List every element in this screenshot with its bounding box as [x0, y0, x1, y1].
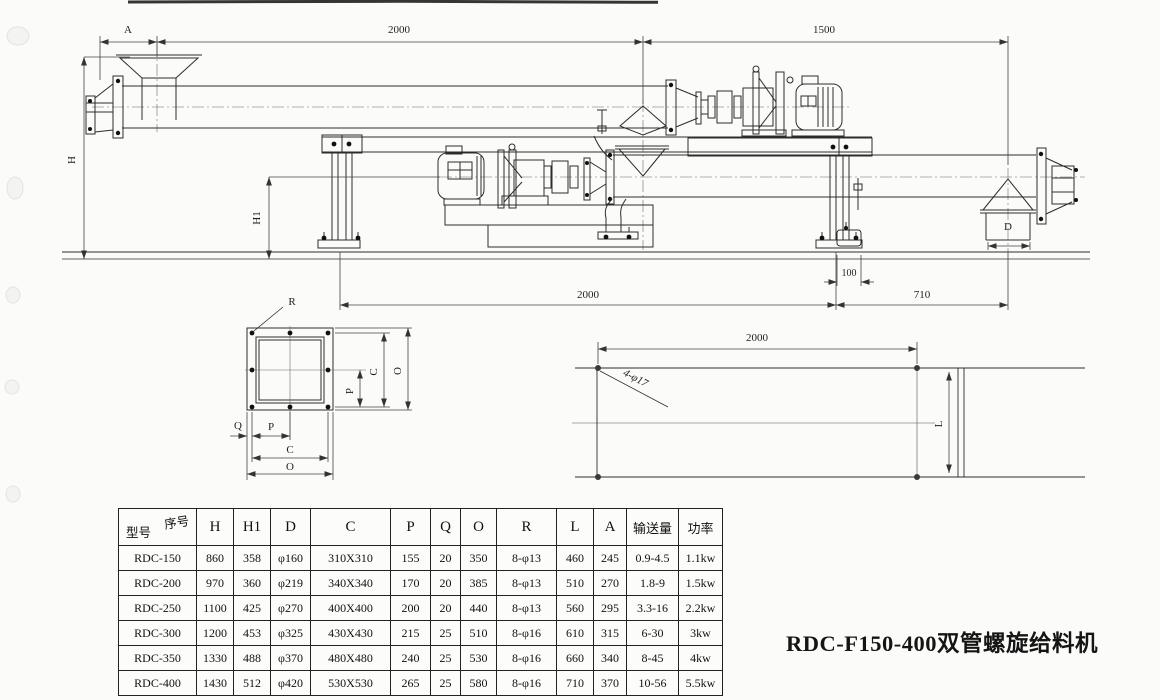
dim-label-2000-top: 2000	[388, 24, 411, 36]
cell-value: 860	[197, 546, 234, 571]
header-model: 型号	[126, 522, 151, 541]
cell-value: φ219	[271, 571, 311, 596]
cell-value: 580	[461, 671, 497, 696]
cell-value: φ270	[271, 596, 311, 621]
cell-model: RDC-150	[119, 546, 197, 571]
cell-value: 340	[594, 646, 627, 671]
dim-label-h: H	[66, 156, 78, 164]
dim-label-100: 100	[842, 268, 857, 279]
cell-value: 3kw	[679, 621, 723, 646]
dim-label-r: R	[288, 296, 296, 308]
cell-value: 970	[197, 571, 234, 596]
cell-value: 155	[391, 546, 431, 571]
cell-value: 1200	[197, 621, 234, 646]
dim-label-h1: H1	[251, 211, 263, 224]
header-q: Q	[431, 509, 461, 546]
cell-value: 315	[594, 621, 627, 646]
cell-value: 560	[557, 596, 594, 621]
dim-label-p-right: P	[344, 388, 356, 394]
cell-value: 440	[461, 596, 497, 621]
cell-value: 8-φ13	[497, 571, 557, 596]
plate-detail-dims	[598, 342, 949, 473]
cell-value: 8-φ13	[497, 596, 557, 621]
header-row: 序号 型号 H H1 D C P Q O R L A 输送量 功率	[119, 509, 723, 546]
cell-value: 425	[234, 596, 271, 621]
cell-value: 5.5kw	[679, 671, 723, 696]
dim-label-o-bottom: O	[286, 461, 294, 473]
cell-value: 1330	[197, 646, 234, 671]
header-a: A	[594, 509, 627, 546]
header-c: C	[311, 509, 391, 546]
dim-label-c-right: C	[368, 368, 380, 375]
upper-conveyor	[86, 55, 844, 138]
cell-value: 385	[461, 571, 497, 596]
cell-value: 295	[594, 596, 627, 621]
cell-value: 25	[431, 671, 461, 696]
flange-detail	[245, 307, 366, 440]
cell-value: 510	[461, 621, 497, 646]
cell-value: 20	[431, 596, 461, 621]
header-model-serial: 序号 型号	[119, 509, 197, 546]
cell-model: RDC-400	[119, 671, 197, 696]
dim-label-d: D	[1004, 221, 1012, 233]
dim-label-710: 710	[914, 289, 931, 301]
table-row: RDC-200 970 360 φ219 340X340 170 20 385 …	[119, 571, 723, 596]
cell-value: 610	[557, 621, 594, 646]
cell-value: 8-φ16	[497, 671, 557, 696]
plate-detail	[572, 365, 1085, 480]
lower-conveyor	[438, 106, 1078, 247]
dim-label-c-bottom: C	[286, 444, 293, 456]
cell-value: 1430	[197, 671, 234, 696]
cell-value: 530	[461, 646, 497, 671]
cell-model: RDC-300	[119, 621, 197, 646]
main-dimension-labels: A 2000 1500 H H1 100 2000 710 D	[66, 24, 1012, 301]
dim-label-plate-2000: 2000	[746, 332, 769, 344]
cell-value: 25	[431, 646, 461, 671]
dim-label-1500: 1500	[813, 24, 836, 36]
cell-value: 265	[391, 671, 431, 696]
header-h: H	[197, 509, 234, 546]
cell-value: φ160	[271, 546, 311, 571]
header-d: D	[271, 509, 311, 546]
cell-value: 8-φ16	[497, 621, 557, 646]
table-row: RDC-250 1100 425 φ270 400X400 200 20 440…	[119, 596, 723, 621]
cell-value: 1.5kw	[679, 571, 723, 596]
dim-label-2000-bottom: 2000	[577, 289, 600, 301]
cell-value: 460	[557, 546, 594, 571]
cell-value: 512	[234, 671, 271, 696]
cell-model: RDC-250	[119, 596, 197, 621]
cell-value: φ420	[271, 671, 311, 696]
cell-value: 400X400	[311, 596, 391, 621]
cell-value: 25	[431, 621, 461, 646]
centerlines	[92, 44, 1085, 252]
cell-value: 358	[234, 546, 271, 571]
cell-value: 480X480	[311, 646, 391, 671]
cell-value: 488	[234, 646, 271, 671]
cell-model: RDC-200	[119, 571, 197, 596]
cell-value: 20	[431, 571, 461, 596]
cell-value: 200	[391, 596, 431, 621]
dim-label-q: Q	[234, 420, 242, 432]
cell-model: RDC-350	[119, 646, 197, 671]
cell-value: 270	[594, 571, 627, 596]
cell-value: φ325	[271, 621, 311, 646]
cell-value: 710	[557, 671, 594, 696]
cell-value: 240	[391, 646, 431, 671]
drawing-sheet: A 2000 1500 H H1 100 2000 710 D	[0, 0, 1160, 700]
cell-value: 8-φ16	[497, 646, 557, 671]
header-p: P	[391, 509, 431, 546]
plate-detail-labels: 2000 4-φ17 L	[621, 332, 945, 427]
cell-value: 1.8-9	[627, 571, 679, 596]
cell-value: 245	[594, 546, 627, 571]
dim-label-a: A	[124, 24, 132, 36]
cell-value: 215	[391, 621, 431, 646]
cell-value: 1100	[197, 596, 234, 621]
cell-value: 530X530	[311, 671, 391, 696]
header-power: 功率	[679, 509, 723, 546]
scan-top-edge	[128, 1, 658, 2]
dim-label-p-bottom: P	[268, 421, 274, 433]
header-l: L	[557, 509, 594, 546]
table-row: RDC-300 1200 453 φ325 430X430 215 25 510…	[119, 621, 723, 646]
dim-label-l: L	[933, 420, 945, 427]
scan-smudges	[5, 27, 29, 505]
cell-value: 0.9-4.5	[627, 546, 679, 571]
cell-value: 2.2kw	[679, 596, 723, 621]
cell-value: 3.3-16	[627, 596, 679, 621]
main-dimensions	[84, 36, 1030, 310]
cell-value: 8-φ13	[497, 546, 557, 571]
dim-label-o-right: O	[392, 367, 404, 375]
cell-value: 453	[234, 621, 271, 646]
spec-table: 序号 型号 H H1 D C P Q O R L A 输送量 功率 RDC-15…	[118, 508, 723, 696]
cell-value: 660	[557, 646, 594, 671]
cell-value: 360	[234, 571, 271, 596]
cell-value: 510	[557, 571, 594, 596]
header-capacity: 输送量	[627, 509, 679, 546]
assembly-drawing: A 2000 1500 H H1 100 2000 710 D	[0, 0, 1160, 505]
table-row: RDC-400 1430 512 φ420 530X530 265 25 580…	[119, 671, 723, 696]
dim-label-4-phi-17: 4-φ17	[621, 367, 650, 390]
table-row: RDC-350 1330 488 φ370 480X480 240 25 530…	[119, 646, 723, 671]
cell-value: 8-45	[627, 646, 679, 671]
cell-value: 6-30	[627, 621, 679, 646]
cell-value: 1.1kw	[679, 546, 723, 571]
cell-value: 10-56	[627, 671, 679, 696]
header-serial: 序号	[163, 510, 191, 533]
spec-table-body: RDC-150 860 358 φ160 310X310 155 20 350 …	[119, 546, 723, 696]
header-r: R	[497, 509, 557, 546]
spec-table-head: 序号 型号 H H1 D C P Q O R L A 输送量 功率	[119, 509, 723, 546]
cell-value: 340X340	[311, 571, 391, 596]
cell-value: 350	[461, 546, 497, 571]
cell-value: 4kw	[679, 646, 723, 671]
flange-detail-labels: R P C O Q P C O	[234, 296, 404, 473]
cell-value: 170	[391, 571, 431, 596]
header-h1: H1	[234, 509, 271, 546]
cell-value: φ370	[271, 646, 311, 671]
table-row: RDC-150 860 358 φ160 310X310 155 20 350 …	[119, 546, 723, 571]
header-o: O	[461, 509, 497, 546]
cell-value: 430X430	[311, 621, 391, 646]
cell-value: 310X310	[311, 546, 391, 571]
drawing-title: RDC-F150-400双管螺旋给料机	[786, 626, 1098, 658]
cell-value: 370	[594, 671, 627, 696]
cell-value: 20	[431, 546, 461, 571]
